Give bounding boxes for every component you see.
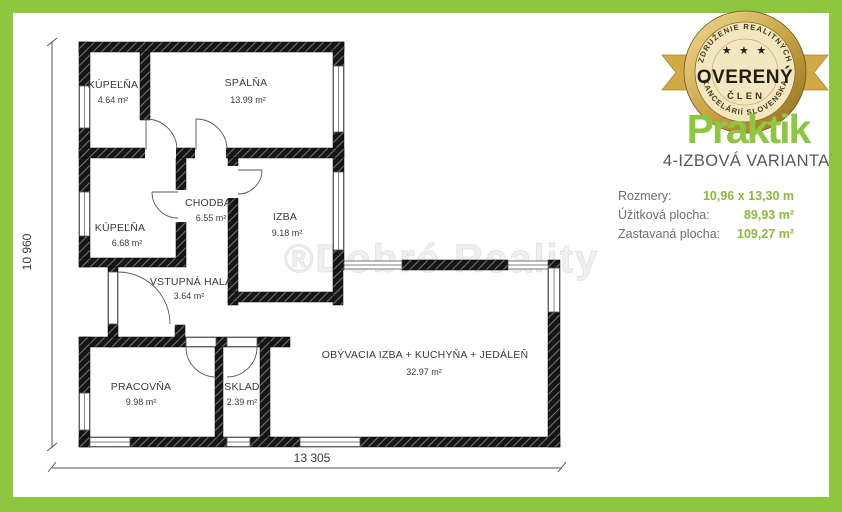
room-label: KÚPEĽŇA — [95, 221, 145, 234]
room-label: OBÝVACIA IZBA + KUCHYŇA + JEDÁLEŇ — [322, 348, 529, 361]
praktik-logo: Praktik — [648, 106, 842, 153]
room-area: 2.39 m² — [227, 397, 258, 407]
info-value: 10,96 x 13,30 m — [703, 189, 794, 203]
floorplan-drawing: ®Dobré Reality — [0, 0, 842, 512]
room-area: 9.18 m² — [272, 228, 303, 238]
variant-label: 4-IZBOVÁ VARIANTA — [663, 152, 830, 170]
info-row-rozmery: Rozmery: 10,96 x 13,30 m — [618, 189, 794, 208]
dimension-width-label: 13 305 — [294, 451, 331, 465]
room-area: 3.64 m² — [174, 291, 205, 301]
green-frame: ®Dobré Reality — [0, 0, 842, 512]
badge-stars-icon: ★ ★ ★ — [722, 44, 769, 57]
room-label: CHODBA — [185, 197, 231, 209]
room-area: 13.99 m² — [230, 95, 266, 105]
info-value: 89,93 m² — [744, 208, 794, 222]
room-area: 4.64 m² — [98, 95, 129, 105]
variant-mark: * — [830, 153, 834, 162]
info-label: Rozmery: — [618, 189, 671, 203]
dimension-height-label: 10 960 — [20, 233, 34, 270]
variant-title: 4-IZBOVÁ VARIANTA* — [654, 152, 842, 171]
badge-title: OVERENÝ — [697, 66, 793, 88]
room-label: SPÁLŇA — [225, 76, 268, 89]
room-label: VSTUPNÁ HALA — [150, 275, 232, 288]
info-value: 109,27 m² — [737, 227, 794, 241]
info-row-uzitkova: Úžitková plocha: 89,93 m² — [618, 208, 794, 227]
room-label: PRACOVŇA — [111, 380, 172, 393]
room-label: IZBA — [273, 211, 297, 223]
room-area: 6.55 m² — [196, 213, 227, 223]
room-area: 6.68 m² — [112, 238, 143, 248]
info-row-zastavana: Zastavaná plocha: 109,27 m² — [618, 227, 794, 246]
info-label: Úžitková plocha: — [618, 208, 710, 222]
room-area: 32.97 m² — [406, 367, 442, 377]
info-label: Zastavaná plocha: — [618, 227, 720, 241]
property-info: Rozmery: 10,96 x 13,30 m Úžitková plocha… — [618, 189, 794, 246]
room-area: 9.98 m² — [126, 397, 157, 407]
room-label: KÚPEĽŇA — [88, 78, 138, 91]
badge-subtitle: ČLEN — [727, 90, 765, 102]
room-label: SKLAD — [224, 381, 260, 393]
